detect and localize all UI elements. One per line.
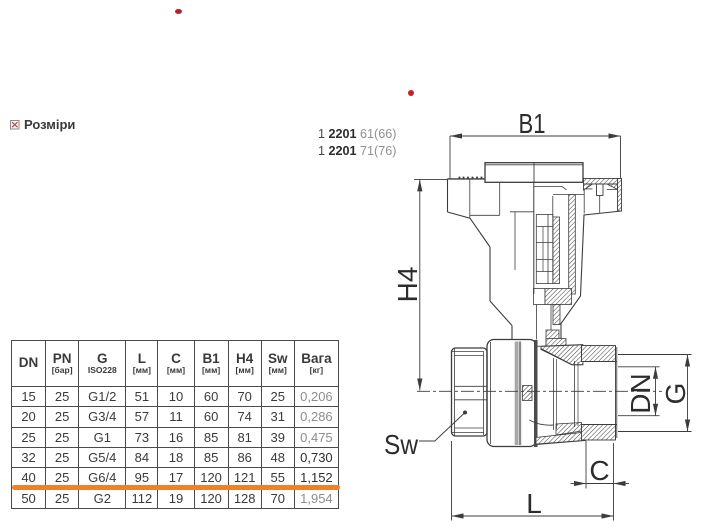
svg-text:Sw: Sw [384,429,419,460]
svg-text:H4: H4 [392,267,423,303]
svg-text:L: L [526,488,542,519]
svg-text:G: G [660,383,691,405]
svg-text:DN: DN [625,373,656,413]
svg-text:B1: B1 [519,108,546,139]
svg-text:C: C [589,455,609,486]
